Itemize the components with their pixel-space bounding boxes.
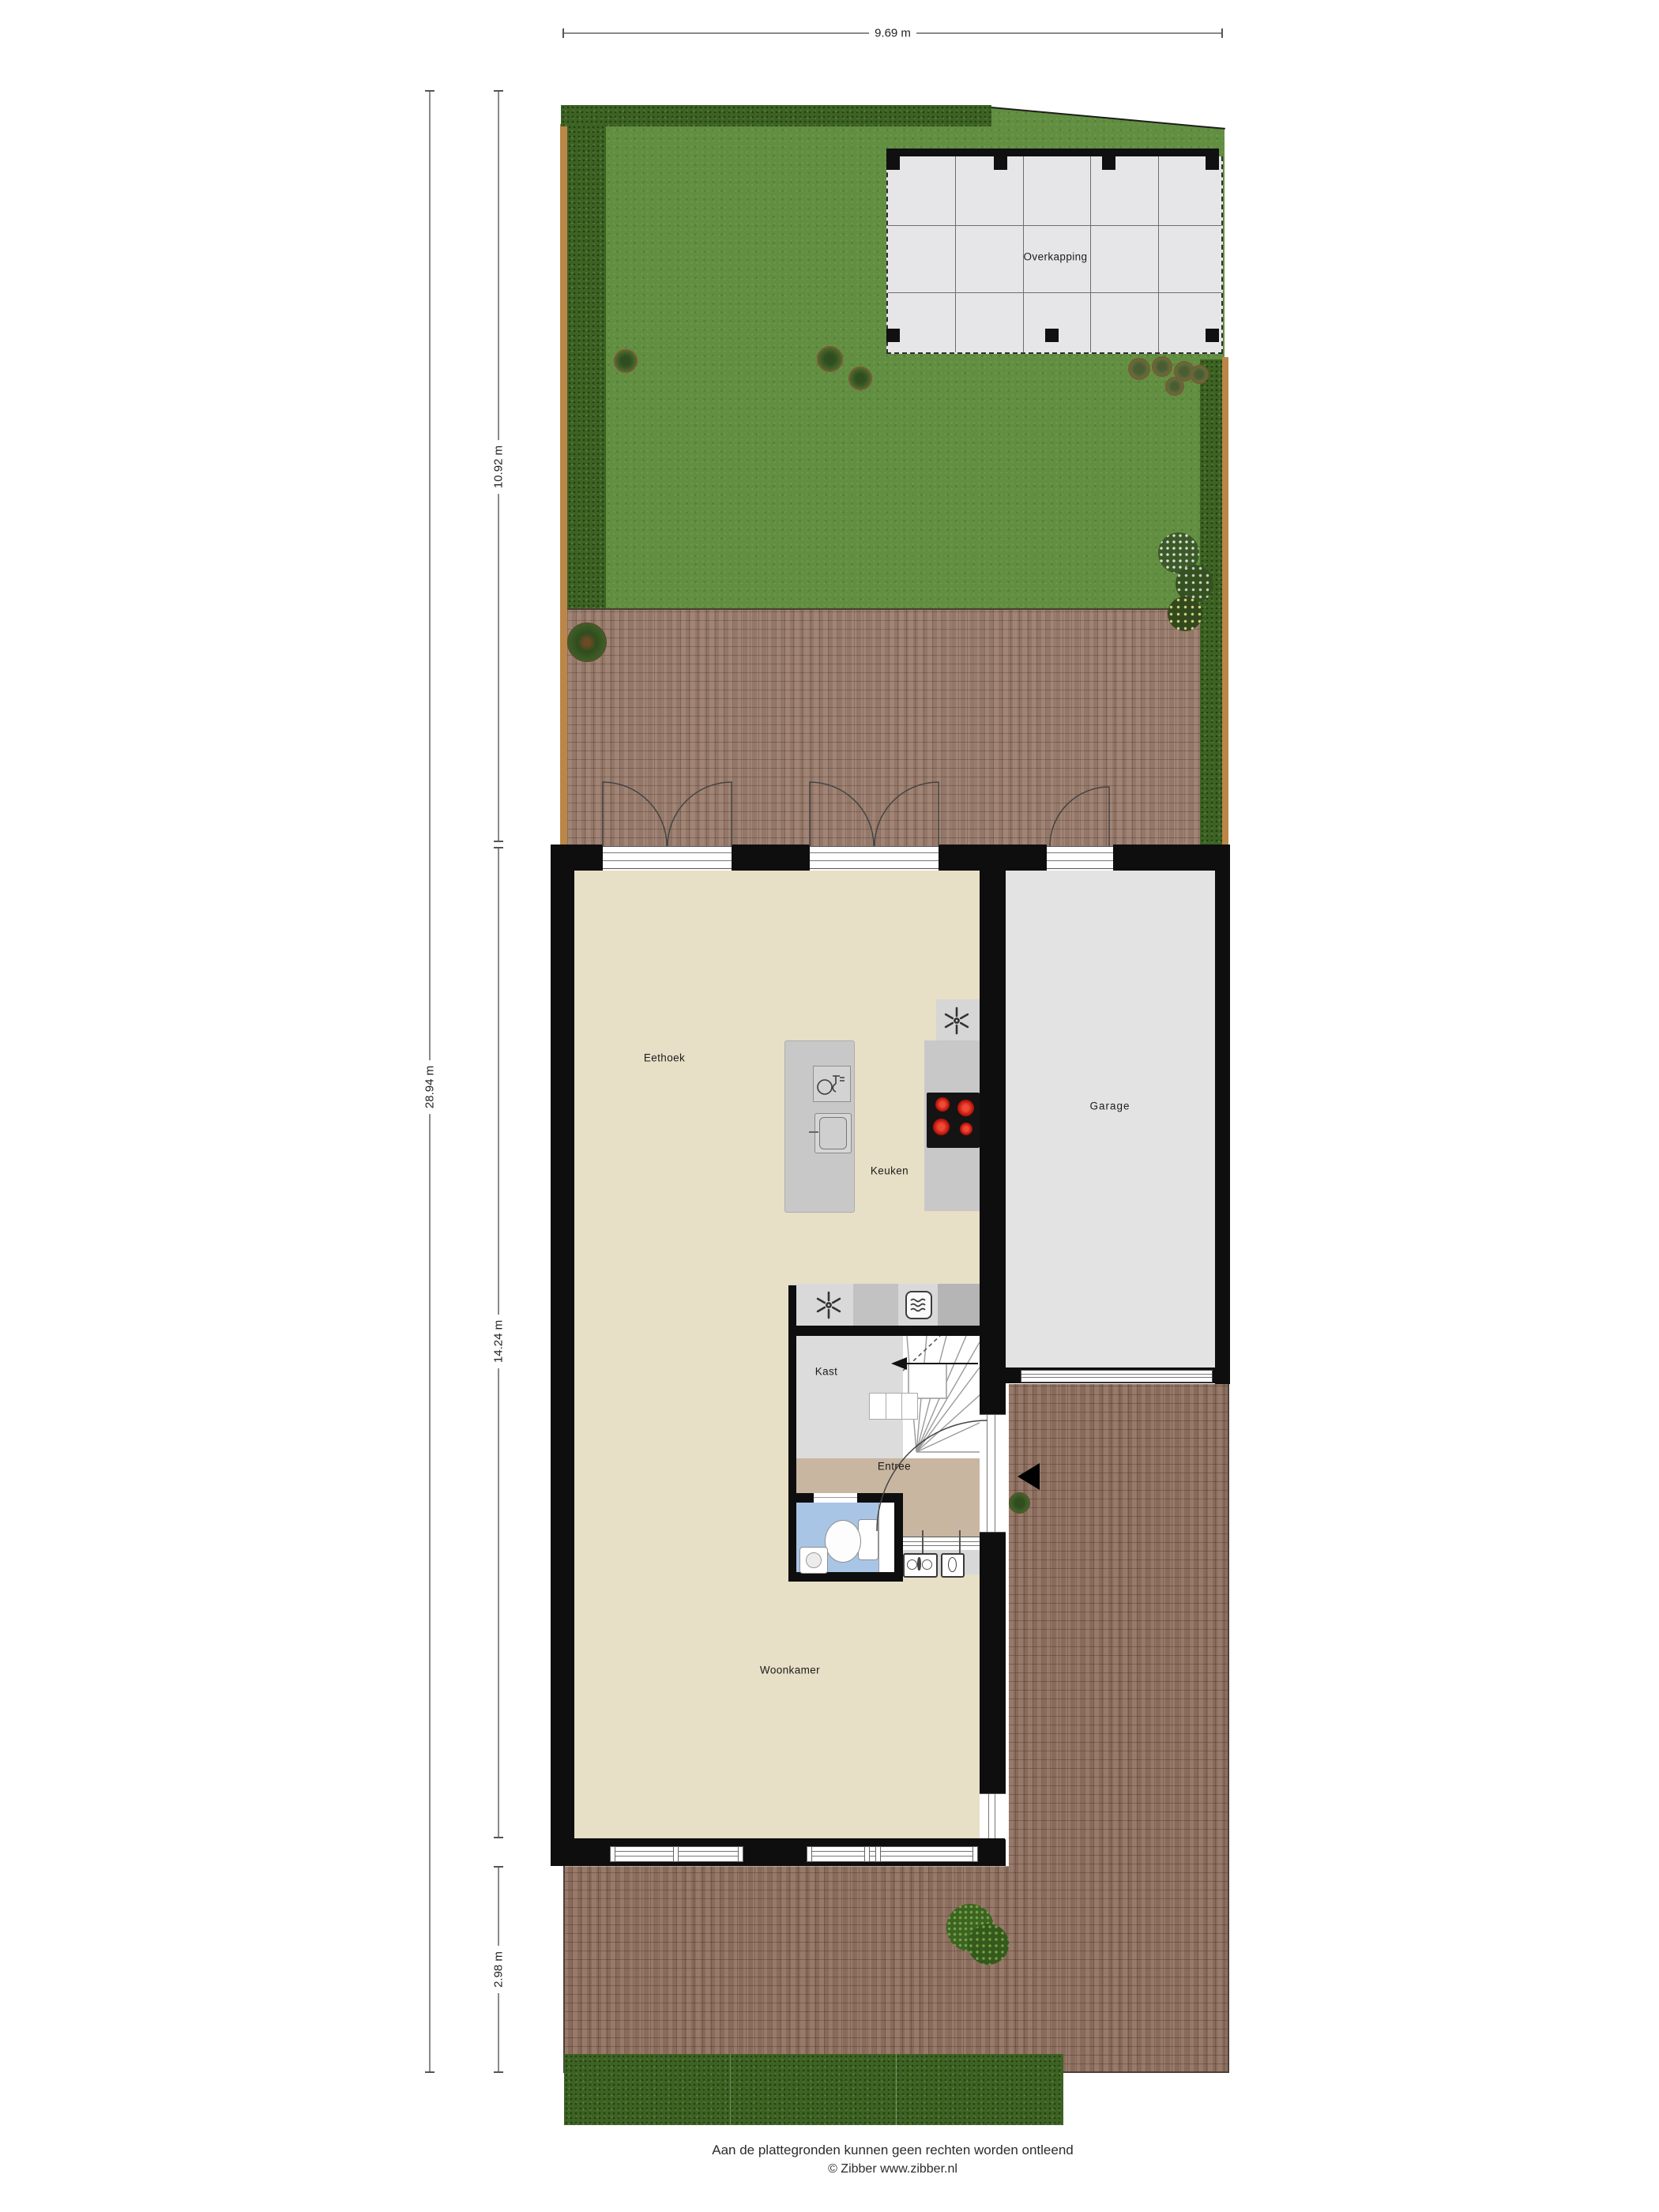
dim-tick [494,1837,503,1838]
garden-shrub-cluster [1152,356,1172,377]
microwave-icon [905,1290,933,1320]
floor-garage [1006,871,1215,1368]
dim-tick [425,90,434,92]
hedge-top [561,105,991,126]
dim-label-garden: 10.92 m [491,440,506,494]
dim-tick [494,1866,503,1868]
sink-basin [819,1117,847,1149]
window-woonkamer-left [611,1846,743,1862]
garden-shrub-cluster [1165,377,1184,396]
room-label-eethoek: Eethoek [644,1052,685,1064]
hob-burner [957,1100,974,1116]
garden-shrub [614,349,638,373]
footer-copyright: © Zibber www.zibber.nl [521,2162,1264,2176]
stair-arrow-icon [891,1357,907,1370]
dishwasher [813,1066,851,1102]
garden-shrub [848,367,872,390]
canopy-post [886,156,900,170]
patio-border [563,1866,565,2073]
extractor-fan-icon [941,1005,972,1036]
canopy-post [1102,156,1115,170]
canopy-post [994,156,1007,170]
room-label-kast: Kast [815,1366,838,1378]
dishwasher-icon [814,1066,848,1100]
canopy-post [1206,329,1219,342]
garden-shrub [817,346,843,372]
dim-tick [494,2071,503,2073]
fence-left [560,124,567,846]
canopy-post [1206,156,1219,170]
dim-label-house: 14.24 m [491,1315,506,1368]
canopy-grid-line [1090,156,1091,352]
garden-shrub-cluster [1128,358,1150,380]
toilet-washbasin [799,1547,828,1574]
induction-hob [927,1093,980,1148]
footer-disclaimer: Aan de plattegronden kunnen geen rechten… [521,2142,1264,2158]
room-label-keuken: Keuken [871,1165,908,1177]
island-sink [814,1113,852,1153]
right-wall-window [980,1793,1006,1840]
front-door-swing-arc [869,1406,995,1540]
canopy-grid-line [888,292,1221,293]
canopy-beam [886,149,1219,156]
kitchen-counter-bottom [790,1284,980,1326]
patio-shrub [968,1924,1009,1965]
dim-tick [494,841,503,842]
dim-label-plot: 28.94 m [423,1060,438,1114]
entrance-arrow-icon [1018,1463,1040,1490]
sink-tap-icon [809,1131,818,1133]
dim-label-top: 9.69 m [869,26,916,41]
fixture-leaf [948,1557,957,1572]
stair-arrow-line [907,1363,978,1364]
wall-under-counter [788,1326,980,1336]
wall-left [551,845,574,1866]
counter-segment [938,1284,980,1326]
canopy-grid-line [955,156,956,352]
washbasin-bowl [806,1552,822,1568]
canopy-post [886,329,900,342]
room-label-entree: Entree [878,1461,911,1473]
dim-tick [562,28,564,38]
kitchen-island [784,1040,855,1213]
toilet-bowl [825,1520,861,1563]
canopy-grid-line [888,225,1221,226]
garden-shrub-cluster [1190,365,1209,384]
garage-door [1021,1370,1213,1382]
flowering-shrub [1168,596,1202,631]
terrace-tree [567,623,607,662]
fixture-knob [922,1559,932,1570]
patio-border [1228,1384,1229,2073]
entrance-shrub [1009,1492,1030,1514]
dim-tick [494,90,503,92]
door-swing-arcs [545,758,1256,869]
toilet-door [814,1493,857,1503]
wall-garage-right [1215,845,1230,1384]
window-woonkamer-right [807,1846,977,1862]
hob-burner [935,1097,950,1112]
divider-fixture [941,1553,965,1578]
overkapping-canopy: Overkapping [886,149,1223,355]
hedge-bottom [564,2054,1063,2125]
fixture-leaf [917,1557,921,1571]
dim-tick [425,2071,434,2073]
wall-right [980,845,1006,1866]
dim-label-patio: 2.98 m [491,1946,506,1993]
footer: Aan de plattegronden kunnen geen rechten… [521,2142,1264,2176]
room-label-garage: Garage [1089,1100,1130,1112]
dim-tick [494,847,503,848]
hob-burner [933,1119,950,1135]
divider-fixture [903,1553,938,1578]
dim-tick [1221,28,1223,38]
floorplan-page: 9.69 m 28.94 m 10.92 m 14.24 m 2.98 m [0,0,1659,2212]
canopy-post [1045,329,1059,342]
room-label-overkapping: Overkapping [1024,251,1088,263]
fixture-knob [907,1559,917,1570]
extractor-fan-icon [813,1289,845,1321]
room-label-woonkamer: Woonkamer [760,1665,820,1676]
hob-burner [960,1123,972,1135]
canopy-grid-line [1158,156,1159,352]
